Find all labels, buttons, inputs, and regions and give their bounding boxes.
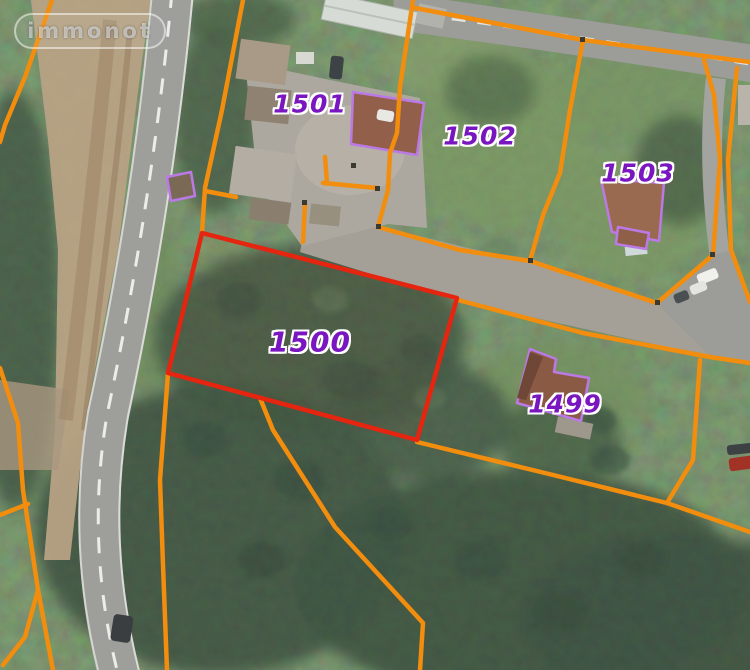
building-1501 <box>351 92 424 155</box>
small-outlined-plot <box>167 172 195 201</box>
car <box>329 55 344 79</box>
aerial-map[interactable]: 1500 1501 1502 1503 1499 immonot <box>0 0 750 670</box>
shed <box>229 146 297 202</box>
map-canvas <box>0 0 750 670</box>
car <box>110 614 134 644</box>
immonot-watermark: immonot <box>14 13 166 49</box>
